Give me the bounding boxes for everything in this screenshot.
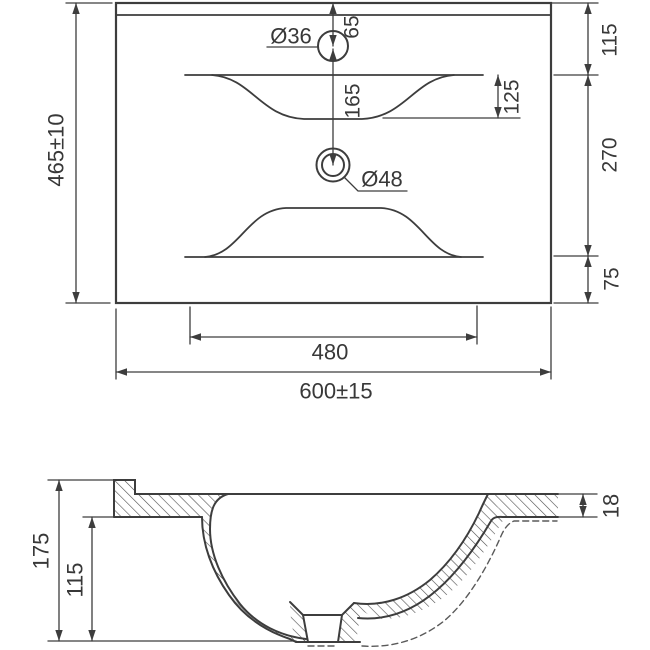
dim-recess-depth-label: 125 bbox=[501, 79, 524, 114]
dim-bowl-depth-label: 115 bbox=[63, 562, 88, 597]
dim-rim-thickness-label: 18 bbox=[599, 494, 624, 518]
right-side-dimensions bbox=[551, 3, 598, 303]
basin-opening-edges bbox=[185, 75, 483, 257]
dim-front-edge-label: 75 bbox=[601, 267, 624, 290]
dim-faucet-offset-label: 65 bbox=[341, 15, 364, 38]
section-right-dimension bbox=[558, 494, 597, 517]
dim-fixing-centers-label: 480 bbox=[312, 340, 349, 365]
dim-overall-depth-label: 465±10 bbox=[44, 113, 69, 186]
depth-dimension bbox=[66, 3, 112, 303]
washbasin-drawing-canvas: 65 165 Ø36 Ø48 125 465±10 bbox=[0, 0, 650, 650]
top-view: 65 165 Ø36 Ø48 125 465±10 bbox=[44, 3, 624, 404]
fixing-centers-dimension bbox=[190, 306, 477, 344]
drain-recess-interior bbox=[303, 615, 342, 642]
section-view: 175 115 18 bbox=[29, 480, 624, 646]
dim-overall-height-label: 175 bbox=[29, 533, 54, 570]
faucet-diameter-callout: Ø36 bbox=[267, 24, 317, 49]
dim-back-edge-label: 115 bbox=[599, 23, 622, 56]
dim-drain-offset-label: 165 bbox=[342, 83, 365, 118]
dim-basin-opening-label: 270 bbox=[599, 137, 622, 172]
recess-depth-dimension bbox=[383, 75, 520, 118]
faucet-diameter-label: Ø36 bbox=[270, 24, 312, 49]
dim-overall-width-label: 600±15 bbox=[299, 379, 372, 404]
technical-drawing: 65 165 Ø36 Ø48 125 465±10 bbox=[0, 0, 650, 650]
drain-diameter-callout: Ø48 bbox=[344, 167, 407, 192]
drain-diameter-label: Ø48 bbox=[361, 167, 403, 192]
